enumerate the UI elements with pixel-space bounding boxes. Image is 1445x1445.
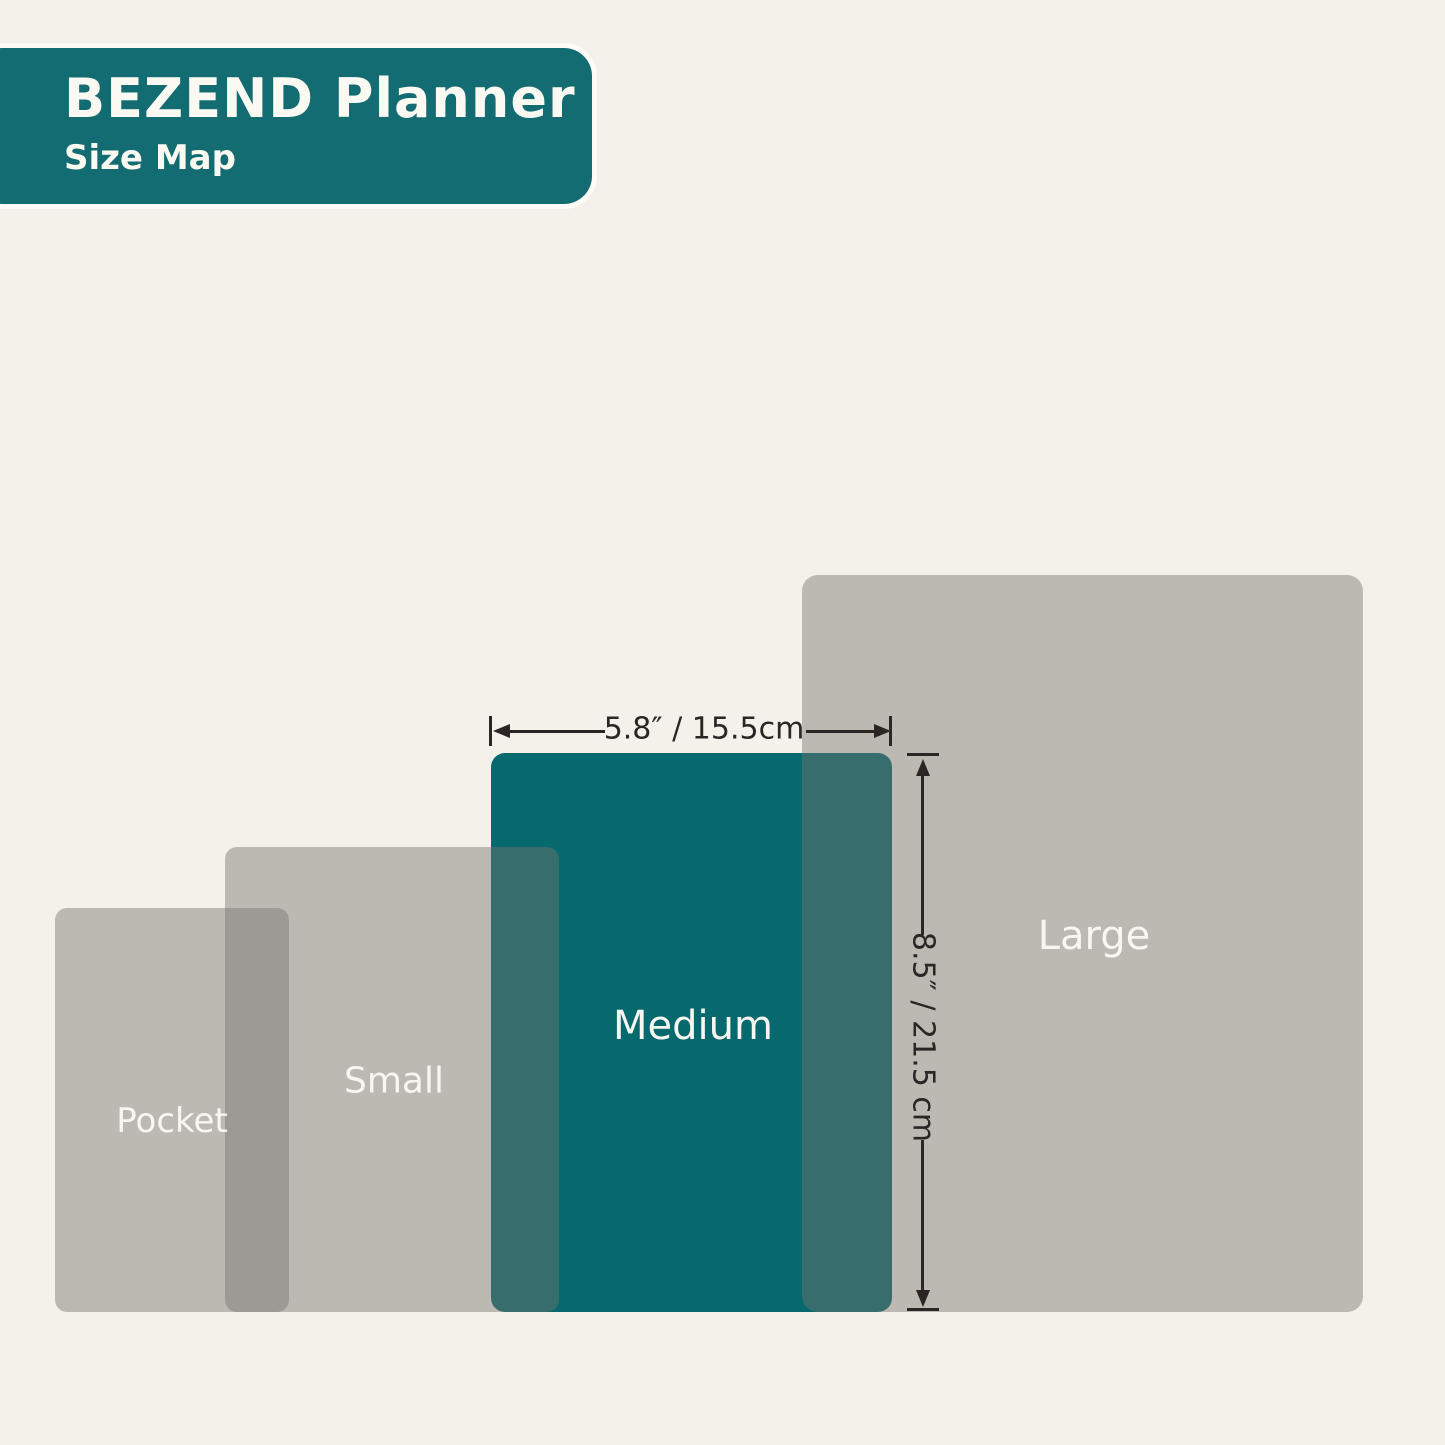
height-dim-cap-top	[907, 753, 939, 756]
height-dim-line-bottom	[921, 1140, 924, 1293]
width-dim-line-right	[806, 730, 876, 733]
page-subtitle: Size Map	[64, 138, 592, 178]
height-dimension-label: 8.5″ / 21.5 cm	[906, 932, 941, 1142]
size-label-small: Small	[344, 1061, 444, 1102]
width-dim-cap-right	[889, 716, 892, 746]
size-label-pocket: Pocket	[116, 1101, 228, 1141]
size-label-large: Large	[1038, 913, 1151, 959]
brand-title: BEZEND Planner	[64, 68, 592, 130]
width-dim-line-left	[508, 730, 605, 733]
arrowhead-down-icon	[916, 1290, 930, 1307]
width-dim-cap-left	[489, 716, 492, 746]
size-map-infographic: BEZEND Planner Size Map Pocket Small Med…	[0, 0, 1445, 1445]
size-label-medium: Medium	[613, 1003, 773, 1049]
height-dim-cap-bottom	[907, 1308, 939, 1311]
width-dimension-label: 5.8″ / 15.5cm	[604, 712, 805, 747]
brand-badge: BEZEND Planner Size Map	[0, 48, 592, 204]
height-dim-line-top	[921, 774, 924, 935]
